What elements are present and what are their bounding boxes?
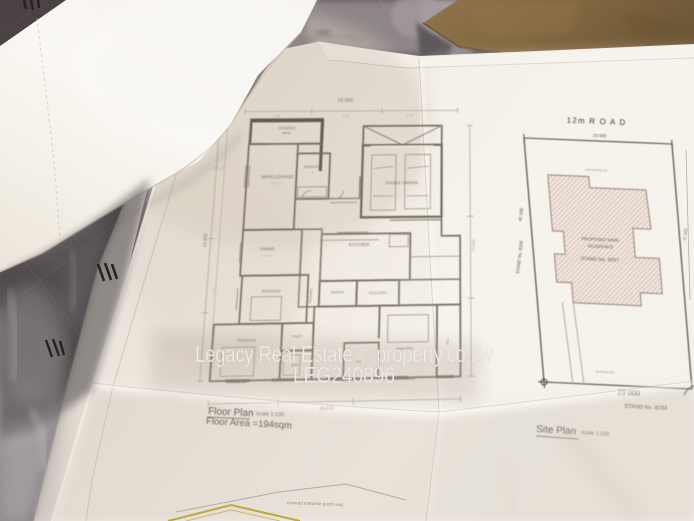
svg-text:23 000: 23 000 (593, 133, 607, 139)
svg-text:COVERED: COVERED (278, 126, 296, 130)
svg-text:KITCHEN: KITCHEN (349, 242, 369, 247)
svg-text:boundary line: boundary line (596, 369, 615, 374)
svg-text:DINING: DINING (260, 246, 275, 251)
svg-text:PANTRY: PANTRY (331, 290, 345, 294)
svg-text:SCULLERY: SCULLERY (369, 291, 388, 295)
svg-text:LEG240896: LEG240896 (293, 362, 395, 388)
svg-text:PATIO: PATIO (282, 131, 292, 135)
svg-text:3.10: 3.10 (211, 288, 216, 295)
svg-text:3.95: 3.95 (274, 114, 280, 118)
svg-text:4.95: 4.95 (407, 113, 413, 117)
svg-text:4.20: 4.20 (343, 114, 349, 118)
svg-text:3.4 x 3.2: 3.4 x 3.2 (261, 254, 272, 258)
svg-text:15.000: 15.000 (338, 98, 354, 104)
svg-text:DOUBLE GARAGE: DOUBLE GARAGE (385, 181, 418, 185)
svg-text:BEDROOM: BEDROOM (304, 165, 323, 169)
svg-text:MAIN LOUNGE: MAIN LOUNGE (262, 174, 294, 179)
svg-text:3.60: 3.60 (220, 164, 225, 171)
svg-text:BEDROOM: BEDROOM (262, 289, 281, 293)
svg-text:5.1 x 4.4: 5.1 x 4.4 (272, 181, 284, 185)
